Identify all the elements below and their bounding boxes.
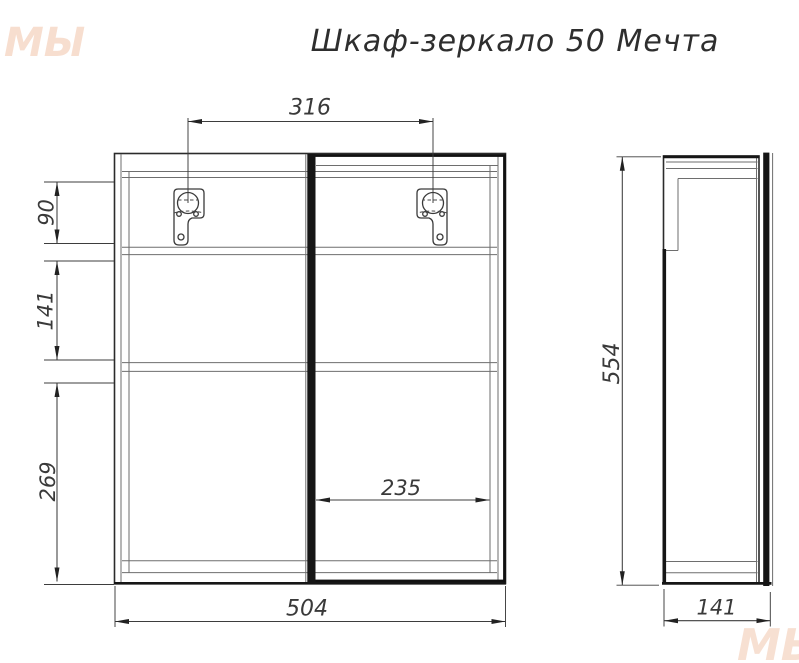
dimension-label-235: 235 — [381, 476, 421, 500]
dimension-label-269: 269 — [36, 461, 60, 501]
front-view — [114, 154, 506, 584]
drawing-page: МЫ МЫ МЫ Шкаф-зеркало 50 Мечта — [0, 0, 799, 663]
side-view — [662, 153, 773, 586]
technical-drawing: МЫ МЫ МЫ Шкаф-зеркало 50 Мечта — [0, 0, 799, 663]
dimension-label-90: 90 — [35, 199, 59, 226]
watermark-top-left: МЫ — [4, 20, 85, 66]
drawing-title: Шкаф-зеркало 50 Мечта — [311, 24, 720, 59]
center-divider — [307, 154, 315, 583]
watermark-bottom-right: МЫ — [737, 620, 799, 663]
dimension-label-316: 316 — [289, 96, 331, 121]
dimension-label-141: 141 — [34, 290, 58, 330]
side-mirror-panel — [763, 153, 769, 586]
dimension-label-141-depth: 141 — [696, 596, 736, 620]
dimension-label-504: 504 — [286, 597, 328, 622]
dimension-label-554: 554 — [600, 343, 625, 385]
